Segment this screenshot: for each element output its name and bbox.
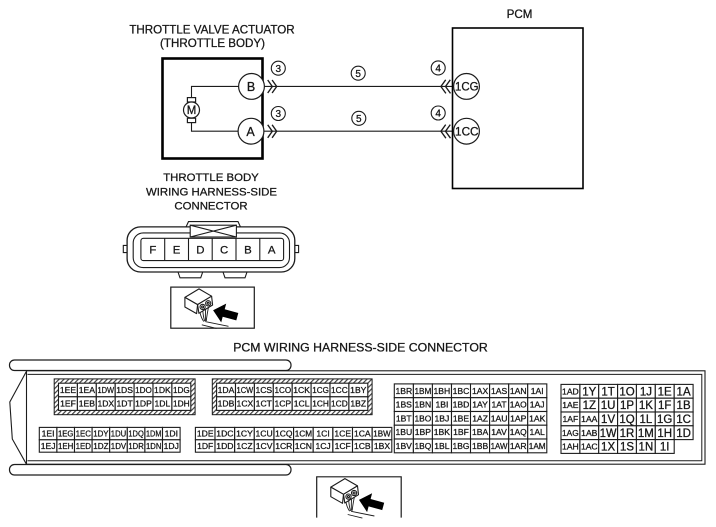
svg-text:1DB: 1DB bbox=[218, 399, 235, 409]
svg-text:1AK: 1AK bbox=[529, 413, 546, 423]
svg-text:1U: 1U bbox=[601, 400, 616, 412]
svg-text:1EE: 1EE bbox=[60, 385, 77, 395]
svg-text:1ED: 1ED bbox=[76, 441, 91, 451]
svg-text:1DS: 1DS bbox=[116, 385, 133, 395]
svg-text:1BS: 1BS bbox=[396, 400, 413, 410]
svg-text:(THROTTLE BODY): (THROTTLE BODY) bbox=[160, 37, 265, 50]
svg-text:1AZ: 1AZ bbox=[472, 413, 488, 423]
svg-text:PCM WIRING HARNESS-SIDE CONNEC: PCM WIRING HARNESS-SIDE CONNECTOR bbox=[233, 340, 488, 354]
svg-text:1P: 1P bbox=[620, 400, 634, 412]
svg-text:1N: 1N bbox=[639, 442, 654, 454]
svg-text:1A: 1A bbox=[677, 386, 691, 398]
svg-text:1BX: 1BX bbox=[374, 441, 391, 451]
svg-text:1AU: 1AU bbox=[491, 413, 508, 423]
svg-text:A: A bbox=[268, 245, 276, 257]
svg-text:1DG: 1DG bbox=[173, 385, 190, 395]
svg-text:1AJ: 1AJ bbox=[530, 400, 545, 410]
svg-text:4: 4 bbox=[435, 109, 441, 120]
svg-text:1V: 1V bbox=[601, 414, 615, 426]
svg-text:1Q: 1Q bbox=[619, 414, 634, 426]
svg-text:M: M bbox=[187, 105, 197, 117]
svg-text:1CG: 1CG bbox=[312, 385, 329, 395]
svg-text:1AV: 1AV bbox=[491, 427, 507, 437]
svg-text:1F: 1F bbox=[658, 400, 671, 412]
svg-text:1CF: 1CF bbox=[335, 441, 351, 451]
svg-text:THROTTLE VALVE ACTUATOR: THROTTLE VALVE ACTUATOR bbox=[129, 24, 294, 37]
svg-text:1BU: 1BU bbox=[395, 427, 412, 437]
svg-text:1DI: 1DI bbox=[165, 429, 178, 439]
svg-text:1DE: 1DE bbox=[197, 429, 214, 439]
svg-text:1EB: 1EB bbox=[79, 399, 96, 409]
svg-text:1BN: 1BN bbox=[415, 400, 432, 410]
svg-text:A: A bbox=[246, 125, 255, 139]
svg-text:CONNECTOR: CONNECTOR bbox=[174, 201, 247, 213]
svg-text:1DQ: 1DQ bbox=[128, 429, 144, 439]
svg-text:1CJ: 1CJ bbox=[315, 441, 330, 451]
svg-text:1BV: 1BV bbox=[396, 441, 413, 451]
svg-text:3: 3 bbox=[276, 64, 282, 75]
svg-text:1AI: 1AI bbox=[531, 386, 544, 396]
svg-text:1AX: 1AX bbox=[472, 386, 489, 396]
svg-text:1CT: 1CT bbox=[256, 399, 273, 409]
svg-text:1CQ: 1CQ bbox=[275, 429, 293, 439]
svg-text:1CR: 1CR bbox=[275, 441, 292, 451]
svg-text:1CP: 1CP bbox=[274, 399, 291, 409]
svg-text:1DP: 1DP bbox=[135, 399, 152, 409]
svg-text:1B: 1B bbox=[677, 400, 691, 412]
svg-text:1CD: 1CD bbox=[331, 399, 348, 409]
svg-text:1BD: 1BD bbox=[453, 400, 470, 410]
svg-text:1DF: 1DF bbox=[197, 441, 213, 451]
svg-text:1BQ: 1BQ bbox=[414, 441, 431, 451]
svg-text:1BE: 1BE bbox=[453, 413, 470, 423]
svg-text:1DC: 1DC bbox=[216, 429, 233, 439]
svg-text:1BY: 1BY bbox=[350, 385, 367, 395]
svg-text:1CX: 1CX bbox=[237, 399, 254, 409]
svg-text:1CC: 1CC bbox=[455, 125, 479, 139]
svg-text:B: B bbox=[247, 80, 255, 94]
svg-text:1DT: 1DT bbox=[116, 399, 133, 409]
svg-text:1CS: 1CS bbox=[255, 385, 272, 395]
svg-text:1G: 1G bbox=[657, 414, 672, 426]
svg-text:1AA: 1AA bbox=[581, 414, 598, 424]
svg-text:1EC: 1EC bbox=[76, 429, 91, 439]
svg-text:1CY: 1CY bbox=[236, 429, 253, 439]
svg-text:1AC: 1AC bbox=[581, 442, 598, 452]
svg-text:1AG: 1AG bbox=[562, 428, 579, 438]
svg-text:1AY: 1AY bbox=[472, 400, 488, 410]
svg-text:1T: 1T bbox=[601, 386, 614, 398]
svg-text:1AP: 1AP bbox=[510, 413, 527, 423]
svg-text:1K: 1K bbox=[639, 400, 653, 412]
svg-text:5: 5 bbox=[355, 69, 361, 80]
svg-text:1EA: 1EA bbox=[79, 385, 96, 395]
svg-text:1EI: 1EI bbox=[42, 429, 55, 439]
svg-text:1CB: 1CB bbox=[354, 441, 371, 451]
svg-text:THROTTLE BODY: THROTTLE BODY bbox=[163, 172, 259, 184]
svg-text:1DJ: 1DJ bbox=[164, 441, 179, 451]
svg-text:E: E bbox=[173, 245, 181, 257]
svg-text:1EF: 1EF bbox=[60, 399, 76, 409]
svg-text:1DD: 1DD bbox=[216, 441, 233, 451]
svg-text:1J: 1J bbox=[640, 386, 652, 398]
svg-text:1CM: 1CM bbox=[295, 429, 312, 439]
svg-text:F: F bbox=[149, 245, 156, 257]
svg-text:1DL: 1DL bbox=[155, 399, 171, 409]
svg-text:1DU: 1DU bbox=[111, 429, 126, 439]
svg-text:1AB: 1AB bbox=[581, 428, 598, 438]
svg-text:1AQ: 1AQ bbox=[510, 427, 527, 437]
svg-text:1Z: 1Z bbox=[583, 400, 596, 412]
svg-text:1DZ: 1DZ bbox=[93, 441, 108, 451]
svg-text:1L: 1L bbox=[640, 414, 653, 426]
svg-text:1CL: 1CL bbox=[294, 399, 310, 409]
svg-text:1AS: 1AS bbox=[491, 386, 508, 396]
svg-text:1CH: 1CH bbox=[312, 399, 329, 409]
svg-text:D: D bbox=[196, 245, 204, 257]
svg-text:WIRING HARNESS-SIDE: WIRING HARNESS-SIDE bbox=[146, 187, 277, 199]
svg-text:1BL: 1BL bbox=[434, 441, 450, 451]
svg-text:1DH: 1DH bbox=[173, 399, 190, 409]
svg-text:1AN: 1AN bbox=[510, 386, 527, 396]
svg-text:1BW: 1BW bbox=[373, 429, 391, 439]
svg-text:1D: 1D bbox=[676, 428, 691, 440]
svg-text:1BZ: 1BZ bbox=[350, 399, 366, 409]
svg-text:1CA: 1CA bbox=[354, 429, 371, 439]
svg-text:1CW: 1CW bbox=[237, 385, 254, 395]
svg-text:5: 5 bbox=[356, 114, 362, 125]
svg-text:PCM: PCM bbox=[507, 8, 533, 21]
svg-text:1DA: 1DA bbox=[218, 385, 235, 395]
svg-text:4: 4 bbox=[435, 64, 441, 75]
svg-text:1DW: 1DW bbox=[97, 385, 114, 395]
svg-text:1E: 1E bbox=[658, 386, 672, 398]
svg-text:1CU: 1CU bbox=[255, 429, 272, 439]
svg-text:1AT: 1AT bbox=[492, 400, 508, 410]
svg-text:1BM: 1BM bbox=[414, 386, 431, 396]
svg-text:1EH: 1EH bbox=[58, 441, 73, 451]
svg-text:1BO: 1BO bbox=[414, 413, 431, 423]
svg-text:1AL: 1AL bbox=[530, 427, 546, 437]
svg-text:1BK: 1BK bbox=[434, 427, 451, 437]
svg-text:1EG: 1EG bbox=[58, 429, 74, 439]
svg-text:1BJ: 1BJ bbox=[434, 413, 449, 423]
svg-text:1DN: 1DN bbox=[146, 441, 161, 451]
svg-text:1DM: 1DM bbox=[146, 429, 161, 439]
svg-text:3: 3 bbox=[276, 109, 282, 120]
svg-text:1H: 1H bbox=[657, 428, 672, 440]
svg-text:1R: 1R bbox=[620, 428, 635, 440]
svg-text:1X: 1X bbox=[601, 442, 615, 454]
svg-text:1CI: 1CI bbox=[316, 429, 329, 439]
svg-text:1BF: 1BF bbox=[453, 427, 469, 437]
svg-text:1S: 1S bbox=[620, 442, 634, 454]
svg-text:1I: 1I bbox=[660, 442, 670, 454]
svg-text:1CG: 1CG bbox=[455, 80, 479, 94]
svg-text:1C: 1C bbox=[676, 414, 691, 426]
svg-text:1BP: 1BP bbox=[415, 427, 432, 437]
svg-text:1W: 1W bbox=[600, 428, 617, 440]
svg-text:1Y: 1Y bbox=[582, 386, 596, 398]
svg-text:1AD: 1AD bbox=[562, 386, 579, 396]
svg-text:1M: 1M bbox=[638, 428, 654, 440]
svg-text:1DX: 1DX bbox=[97, 399, 114, 409]
svg-text:1CN: 1CN bbox=[295, 441, 312, 451]
svg-text:1BR: 1BR bbox=[395, 386, 412, 396]
svg-text:1CZ: 1CZ bbox=[236, 441, 252, 451]
svg-text:1AE: 1AE bbox=[562, 400, 579, 410]
svg-text:1BG: 1BG bbox=[453, 441, 470, 451]
svg-text:1DO: 1DO bbox=[135, 385, 152, 395]
svg-text:1BH: 1BH bbox=[434, 386, 451, 396]
svg-text:1AR: 1AR bbox=[510, 441, 527, 451]
svg-text:1DY: 1DY bbox=[93, 429, 109, 439]
svg-text:1CO: 1CO bbox=[274, 385, 291, 395]
svg-text:1AM: 1AM bbox=[529, 441, 546, 451]
svg-text:1CE: 1CE bbox=[334, 429, 351, 439]
svg-text:C: C bbox=[220, 245, 228, 257]
svg-text:1DK: 1DK bbox=[154, 385, 171, 395]
svg-text:1BA: 1BA bbox=[472, 427, 489, 437]
svg-text:1CC: 1CC bbox=[331, 385, 348, 395]
svg-text:1AW: 1AW bbox=[491, 441, 509, 451]
svg-text:1CK: 1CK bbox=[293, 385, 310, 395]
svg-text:1BB: 1BB bbox=[472, 441, 489, 451]
svg-text:1AF: 1AF bbox=[563, 414, 579, 424]
svg-text:1BT: 1BT bbox=[396, 413, 413, 423]
svg-text:1AH: 1AH bbox=[562, 442, 579, 452]
svg-text:1EJ: 1EJ bbox=[41, 441, 56, 451]
svg-text:1CV: 1CV bbox=[256, 441, 273, 451]
svg-text:1DR: 1DR bbox=[128, 441, 143, 451]
svg-text:B: B bbox=[244, 245, 252, 257]
svg-text:1BC: 1BC bbox=[453, 386, 470, 396]
svg-text:1AO: 1AO bbox=[510, 400, 527, 410]
svg-text:1BI: 1BI bbox=[435, 400, 448, 410]
svg-text:1O: 1O bbox=[619, 386, 634, 398]
svg-text:1DV: 1DV bbox=[111, 441, 127, 451]
